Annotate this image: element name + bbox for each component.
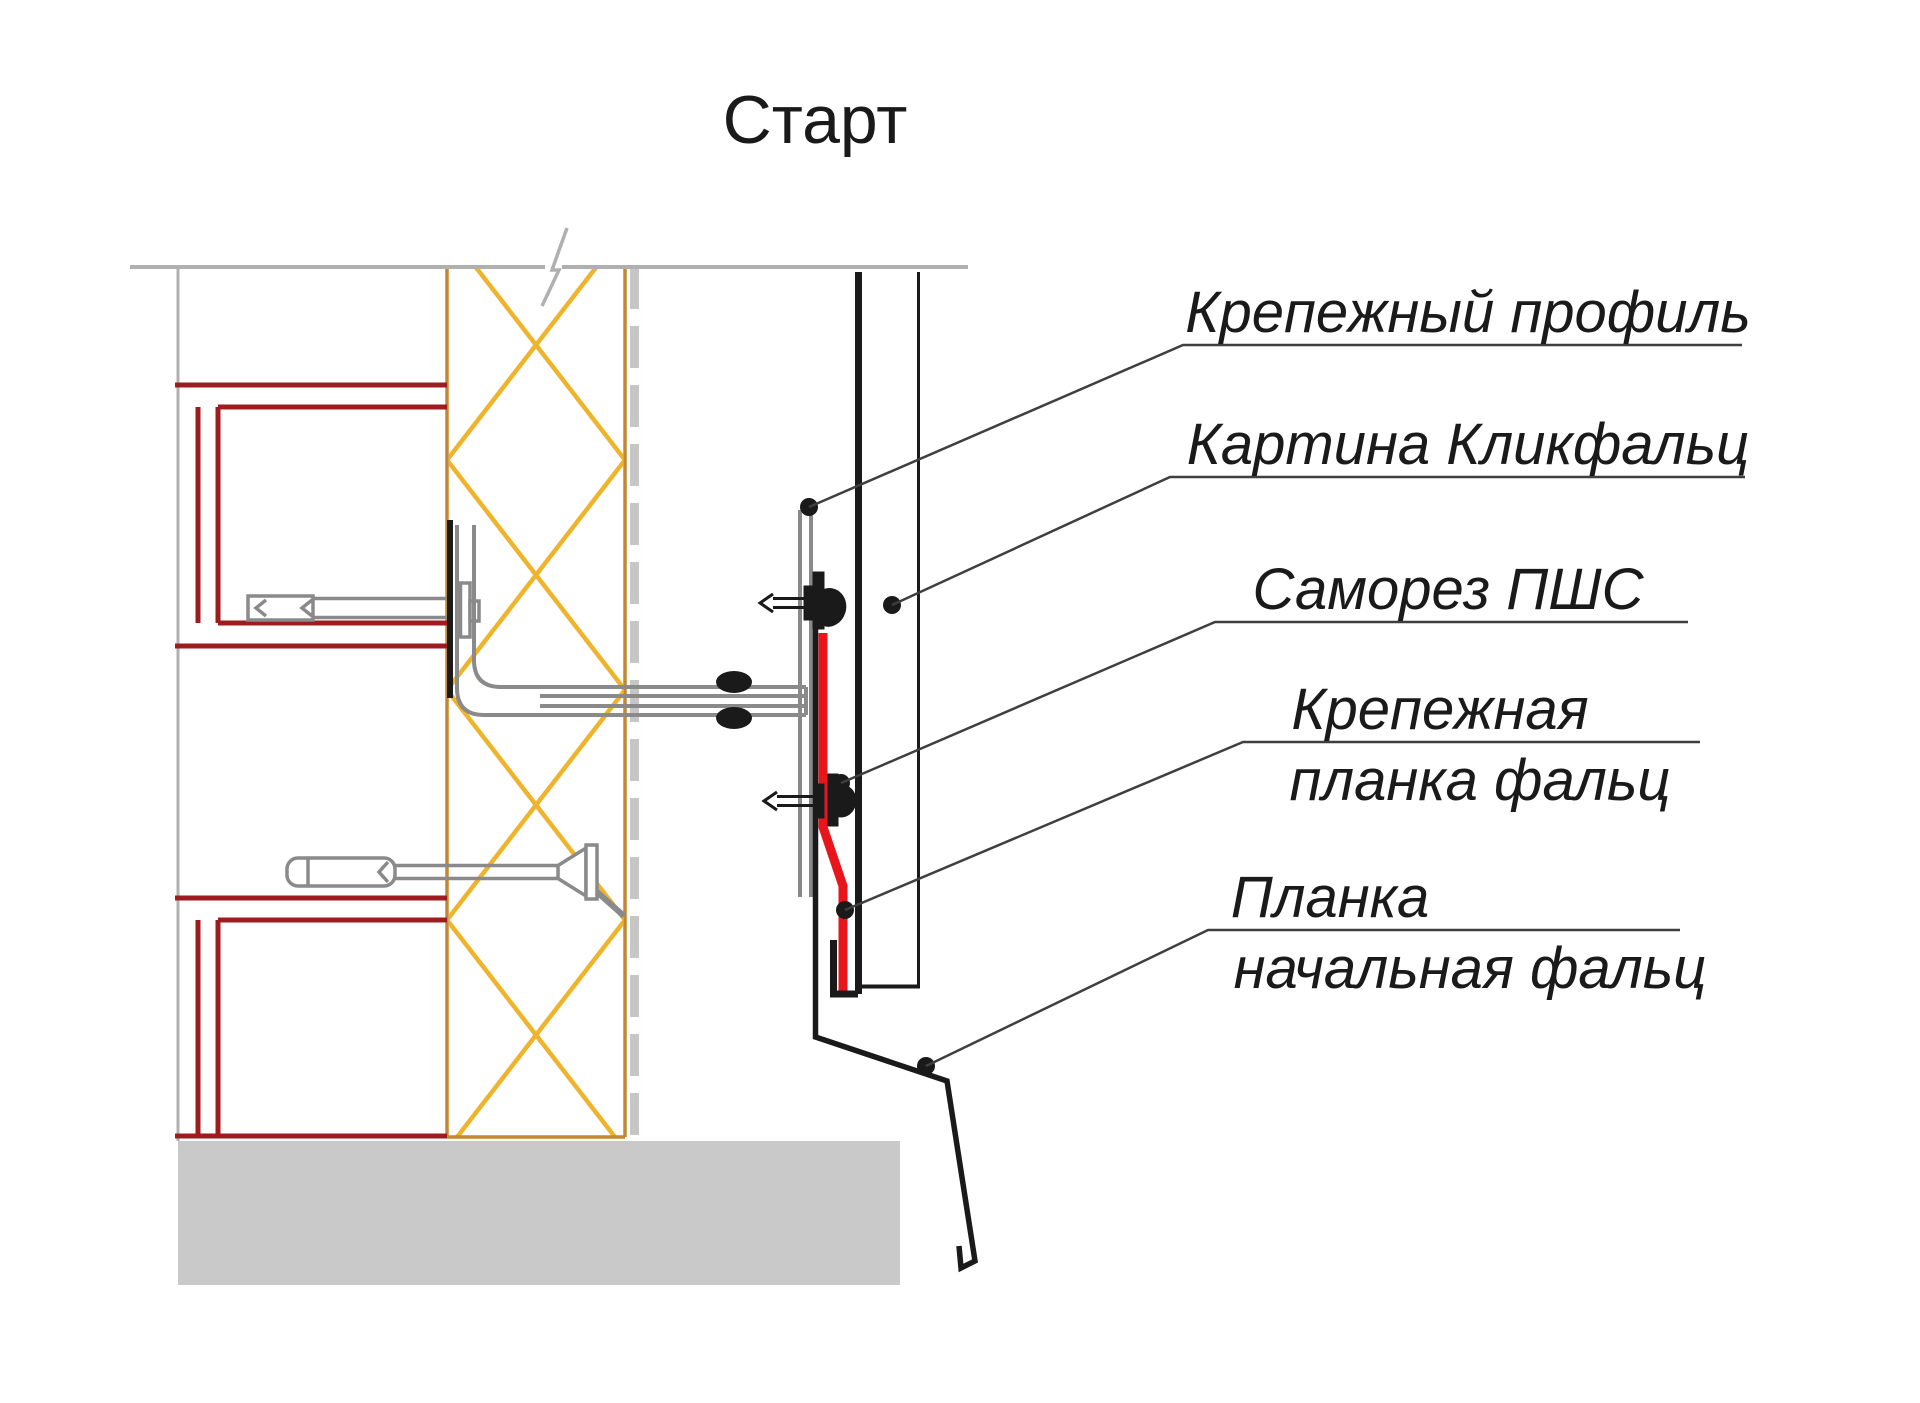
bolt-ellipse <box>716 671 752 693</box>
dowel-flare <box>558 848 586 896</box>
pad-fill <box>447 520 453 698</box>
foundation-ground <box>178 1141 900 1285</box>
hatch-line <box>447 0 625 230</box>
thermal-break-pad <box>447 520 453 698</box>
wall-framing <box>175 385 447 1136</box>
construction-detail-start: Старт Крепежный профиль Картина Кликфаль… <box>0 0 1920 1403</box>
label-starting-strip-line2: начальная фальц <box>1234 936 1707 1001</box>
hatch-line <box>447 0 625 230</box>
ground-fill <box>178 1141 900 1285</box>
screw-tip <box>760 594 773 612</box>
bolt-ellipse <box>716 707 752 729</box>
detail-drawing: Старт Крепежный профиль Картина Кликфаль… <box>0 0 1920 1403</box>
wall-bracket <box>457 525 806 715</box>
label-clickfalz-panel: Картина Кликфальц <box>1187 412 1750 477</box>
label-fixing-strip-line2: планка фальц <box>1290 748 1671 813</box>
label-fixing-profile: Крепежный профиль <box>1185 280 1750 345</box>
label-starting-strip-line1: Планка <box>1231 865 1430 930</box>
seam-clip-upper <box>814 573 845 628</box>
bracket-inner <box>474 525 806 687</box>
dowel-fin <box>597 892 624 916</box>
drawing-title: Старт <box>723 82 908 158</box>
dowel-plate <box>586 845 597 899</box>
anchor-bolt-upper <box>248 583 479 637</box>
bracket-bolts <box>716 671 752 729</box>
label-fixing-strip-line1: Крепежная <box>1291 677 1588 742</box>
screw-washer <box>805 587 813 619</box>
insulation-boundaries <box>447 267 625 1137</box>
screw-tip <box>764 792 777 810</box>
screw-washer <box>815 785 823 817</box>
label-screw-pshs: Саморез ПШС <box>1252 557 1644 622</box>
